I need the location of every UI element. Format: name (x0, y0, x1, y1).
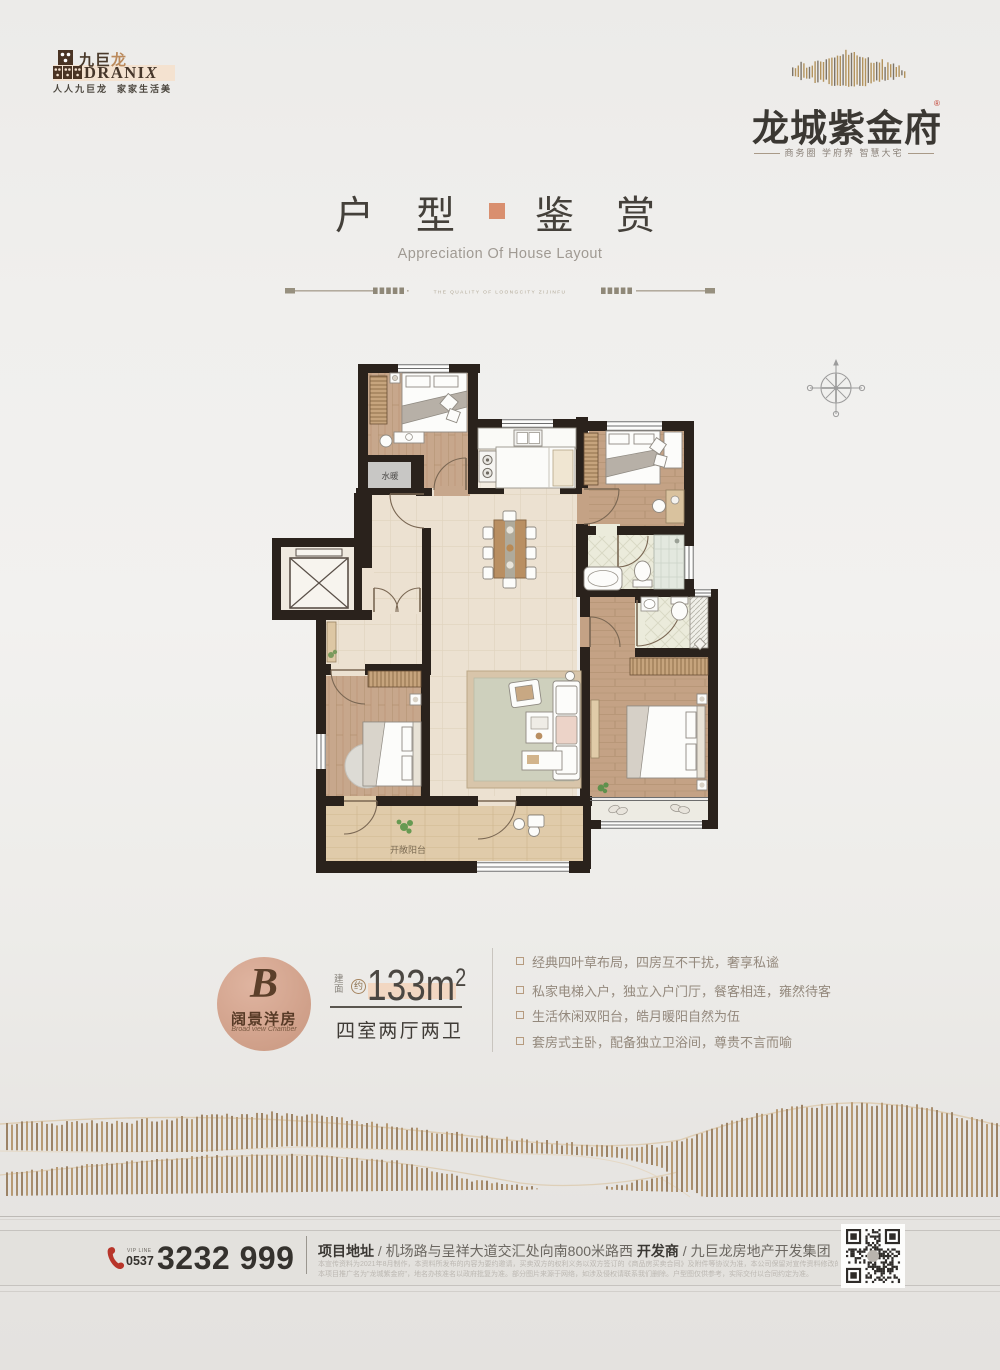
svg-text:开敞阳台: 开敞阳台 (390, 844, 426, 855)
svg-text:水暖: 水暖 (381, 471, 399, 481)
svg-text:THE QUALITY OF LOONGCITY ZIJIN: THE QUALITY OF LOONGCITY ZIJINFU (434, 290, 567, 296)
